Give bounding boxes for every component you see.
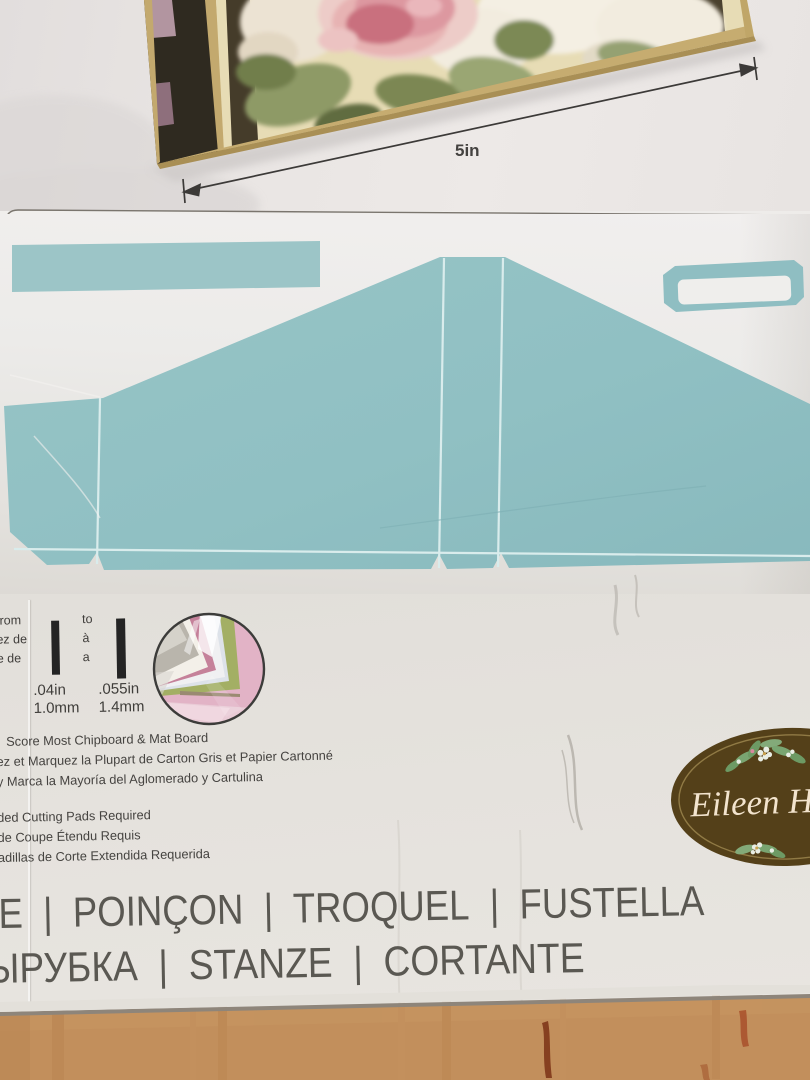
svg-text:Eileen Hu: Eileen Hu: [689, 780, 810, 824]
svg-text:5in: 5in: [455, 141, 480, 160]
